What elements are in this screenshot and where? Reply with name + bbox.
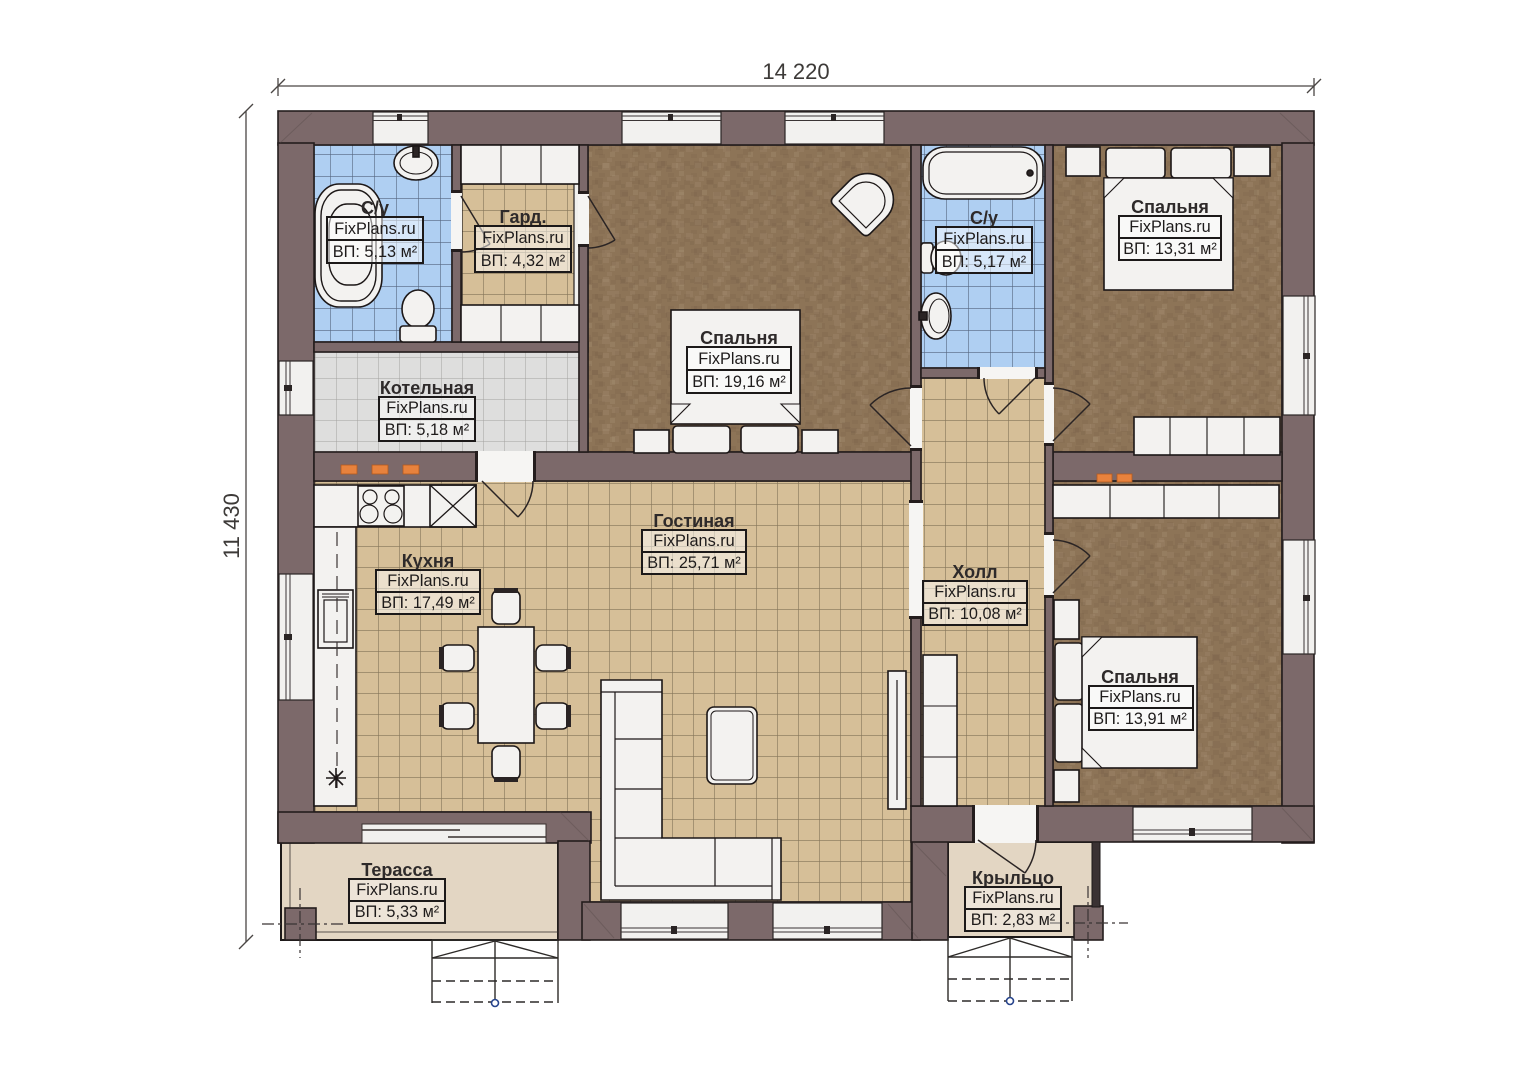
svg-text:FixPlans.ru: FixPlans.ru <box>386 399 467 417</box>
svg-text:FixPlans.ru: FixPlans.ru <box>1099 688 1180 706</box>
svg-text:FixPlans.ru: FixPlans.ru <box>387 572 468 590</box>
svg-text:Гостиная: Гостиная <box>653 511 734 531</box>
svg-text:FixPlans.ru: FixPlans.ru <box>334 220 415 238</box>
svg-text:Гард.: Гард. <box>500 207 547 227</box>
svg-text:Спальня: Спальня <box>1101 667 1179 687</box>
svg-text:ВП: 5,18 м²: ВП: 5,18 м² <box>385 421 470 439</box>
svg-text:FixPlans.ru: FixPlans.ru <box>972 889 1053 907</box>
svg-text:С/у: С/у <box>361 198 389 218</box>
svg-text:ВП: 2,83 м²: ВП: 2,83 м² <box>971 911 1056 929</box>
svg-text:ВП: 4,32 м²: ВП: 4,32 м² <box>481 252 566 270</box>
svg-text:11 430: 11 430 <box>219 493 244 559</box>
svg-text:FixPlans.ru: FixPlans.ru <box>934 583 1015 601</box>
svg-text:FixPlans.ru: FixPlans.ru <box>1129 218 1210 236</box>
svg-text:FixPlans.ru: FixPlans.ru <box>698 350 779 368</box>
svg-text:FixPlans.ru: FixPlans.ru <box>356 881 437 899</box>
svg-text:14 220: 14 220 <box>762 59 829 84</box>
svg-text:ВП: 5,33 м²: ВП: 5,33 м² <box>355 903 440 921</box>
svg-text:Кухня: Кухня <box>402 551 455 571</box>
svg-text:С/у: С/у <box>970 208 998 228</box>
svg-text:ВП: 13,31 м²: ВП: 13,31 м² <box>1123 240 1217 258</box>
svg-text:Холл: Холл <box>952 562 997 582</box>
svg-text:FixPlans.ru: FixPlans.ru <box>653 532 734 550</box>
svg-text:FixPlans.ru: FixPlans.ru <box>482 229 563 247</box>
svg-text:ВП: 17,49 м²: ВП: 17,49 м² <box>381 594 475 612</box>
svg-text:ВП: 10,08 м²: ВП: 10,08 м² <box>928 605 1022 623</box>
svg-text:ВП: 5,13 м²: ВП: 5,13 м² <box>333 243 418 261</box>
svg-text:Терасса: Терасса <box>361 860 433 880</box>
svg-text:ВП: 19,16 м²: ВП: 19,16 м² <box>692 373 786 391</box>
svg-text:ВП: 5,17 м²: ВП: 5,17 м² <box>942 253 1027 271</box>
svg-text:Спальня: Спальня <box>700 328 778 348</box>
svg-text:Котельная: Котельная <box>380 378 474 398</box>
svg-text:ВП: 13,91 м²: ВП: 13,91 м² <box>1093 710 1187 728</box>
svg-text:Спальня: Спальня <box>1131 197 1209 217</box>
svg-text:Крыльцо: Крыльцо <box>972 868 1054 888</box>
svg-text:FixPlans.ru: FixPlans.ru <box>943 230 1024 248</box>
svg-text:ВП: 25,71 м²: ВП: 25,71 м² <box>647 554 741 572</box>
